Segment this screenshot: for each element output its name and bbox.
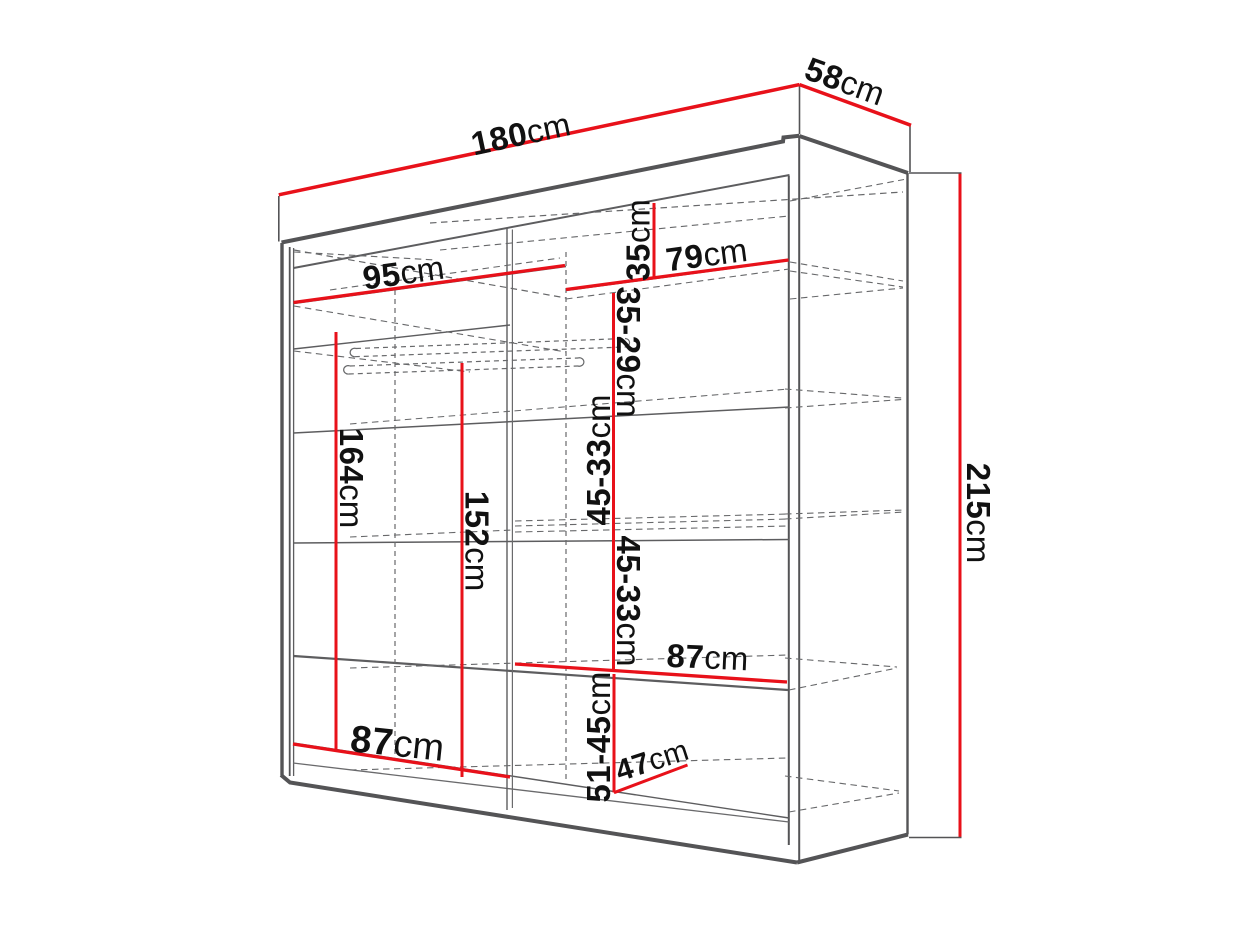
svg-text:164cm: 164cm (333, 428, 370, 529)
svg-text:51-45cm: 51-45cm (580, 672, 617, 803)
svg-text:45-33cm: 45-33cm (580, 395, 617, 526)
svg-text:152cm: 152cm (459, 491, 496, 592)
svg-text:35cm: 35cm (620, 199, 657, 281)
svg-text:87cm: 87cm (666, 637, 749, 678)
svg-text:45-33cm: 45-33cm (610, 536, 647, 667)
svg-text:215cm: 215cm (960, 463, 997, 564)
